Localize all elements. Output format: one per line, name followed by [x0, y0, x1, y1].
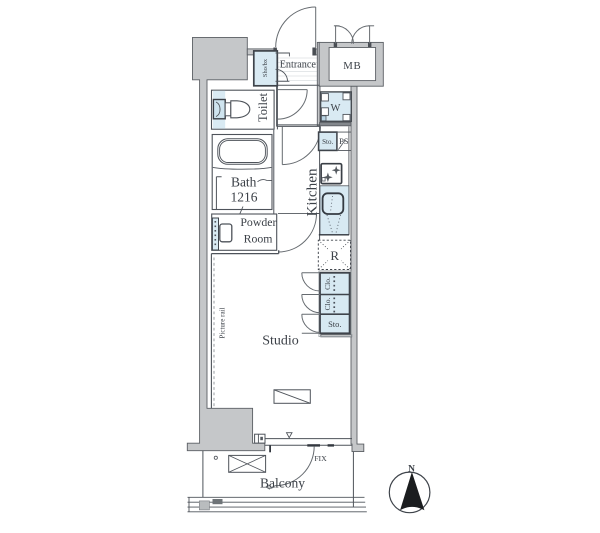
svg-text:Studio: Studio	[262, 333, 299, 348]
svg-text:Toilet: Toilet	[256, 92, 270, 122]
svg-text:Picture rail: Picture rail	[218, 307, 226, 338]
svg-text:Balcony: Balcony	[260, 476, 305, 491]
svg-text:Sto.: Sto.	[328, 319, 341, 329]
svg-text:FIX: FIX	[314, 454, 327, 463]
svg-text:Powder: Powder	[240, 215, 276, 229]
svg-text:PS: PS	[339, 136, 349, 146]
svg-text:Sto.: Sto.	[322, 138, 333, 146]
svg-text:MB: MB	[343, 60, 361, 72]
svg-text:1216: 1216	[231, 190, 258, 205]
svg-text:Clo.: Clo.	[323, 277, 332, 290]
svg-text:R: R	[330, 248, 339, 263]
svg-text:Sho/bx: Sho/bx	[262, 58, 269, 77]
svg-text:Bath: Bath	[231, 175, 257, 190]
svg-text:Room: Room	[244, 232, 273, 246]
svg-text:Clo.: Clo.	[323, 298, 332, 311]
svg-text:W: W	[331, 103, 341, 114]
svg-text:Kitchen: Kitchen	[303, 168, 320, 216]
svg-text:Entrance: Entrance	[280, 59, 317, 70]
